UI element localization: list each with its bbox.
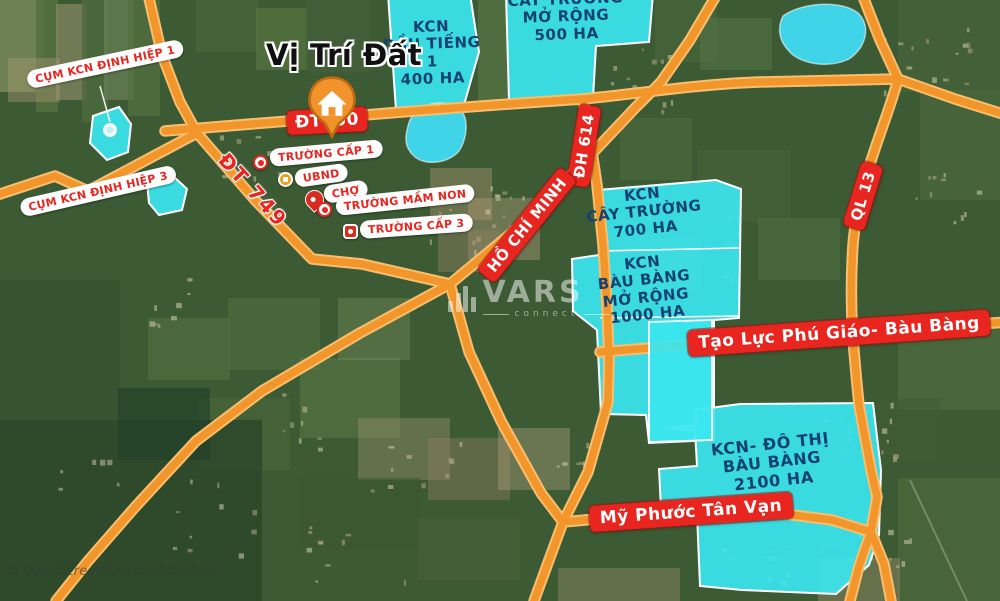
government-marker-icon[interactable]	[278, 172, 293, 187]
vars-logo-icon	[448, 286, 476, 312]
zone-label-cay-truong-mo-rong: CÂY TRƯỜNG MỞ RỘNG 500 HA	[507, 0, 624, 45]
road-ql13-north	[862, 0, 898, 79]
school-marker-icon[interactable]	[253, 155, 268, 170]
pond-2	[780, 4, 866, 64]
map-attribution: © OpenStreetMap contributors	[6, 564, 217, 579]
watermark-sub: connect	[483, 309, 611, 319]
kindergarten-marker-icon[interactable]	[317, 202, 332, 217]
page-title: Vị Trí Đất	[266, 38, 422, 72]
school-marker-icon[interactable]	[343, 224, 358, 239]
property-location-pin[interactable]	[306, 76, 358, 144]
watermark: VARS connect	[448, 278, 610, 319]
satellite-map-canvas[interactable]: KCN DẦU TIẾNG 1 400 HA CÂY TRƯỜNG MỞ RỘN…	[0, 0, 1000, 601]
watermark-brand: VARS	[483, 278, 611, 308]
location-pin-icon	[306, 76, 358, 140]
